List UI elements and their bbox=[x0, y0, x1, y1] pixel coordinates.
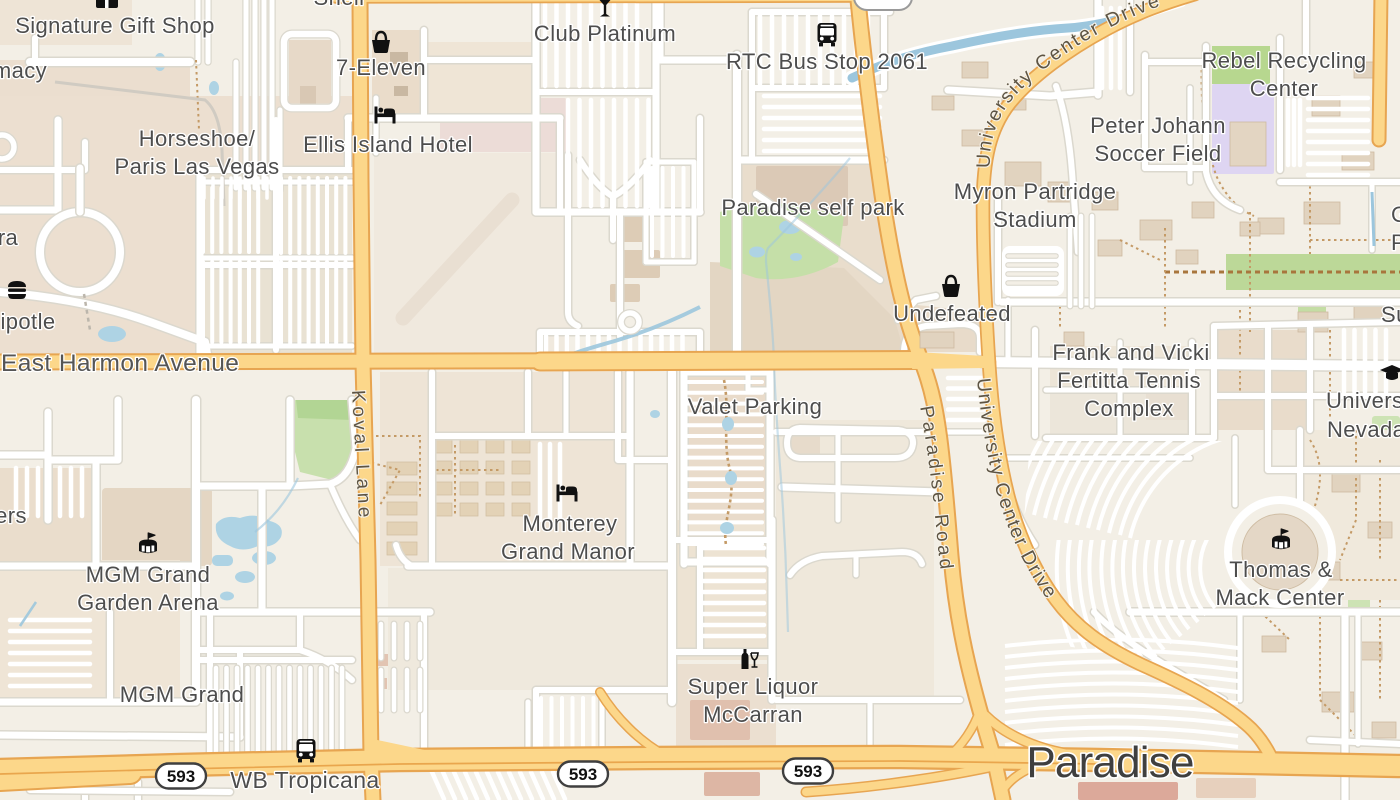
svg-text:593: 593 bbox=[794, 762, 822, 781]
svg-text:Center: Center bbox=[1250, 76, 1318, 101]
svg-text:macy: macy bbox=[0, 58, 47, 83]
svg-text:Su: Su bbox=[1381, 302, 1400, 327]
svg-text:Stadium: Stadium bbox=[993, 207, 1077, 232]
svg-text:Undefeated: Undefeated bbox=[893, 301, 1011, 326]
svg-text:Club Platinum: Club Platinum bbox=[534, 21, 676, 46]
svg-text:Nevada, L: Nevada, L bbox=[1327, 417, 1400, 442]
svg-text:Mack Center: Mack Center bbox=[1215, 585, 1344, 610]
svg-text:Soccer Field: Soccer Field bbox=[1094, 141, 1221, 166]
svg-text:Paradise self park: Paradise self park bbox=[721, 195, 905, 220]
svg-text:Peter Johann: Peter Johann bbox=[1090, 113, 1226, 138]
svg-text:Frank and Vicki: Frank and Vicki bbox=[1052, 340, 1209, 365]
svg-text:WB Tropicana: WB Tropicana bbox=[230, 767, 379, 793]
svg-text:Signature Gift Shop: Signature Gift Shop bbox=[15, 13, 215, 38]
svg-text:Ellis Island Hotel: Ellis Island Hotel bbox=[303, 132, 473, 157]
svg-text:Monterey: Monterey bbox=[523, 511, 618, 536]
svg-text:Paris Las Vegas: Paris Las Vegas bbox=[115, 154, 280, 179]
svg-text:ers: ers bbox=[0, 503, 27, 528]
svg-text:Myron Partridge: Myron Partridge bbox=[954, 179, 1117, 204]
svg-text:593: 593 bbox=[167, 767, 195, 786]
svg-text:ra: ra bbox=[0, 225, 19, 250]
svg-text:RTC Bus Stop 2061: RTC Bus Stop 2061 bbox=[726, 49, 928, 74]
svg-text:Shell: Shell bbox=[314, 0, 365, 10]
svg-text:Fertitta Tennis: Fertitta Tennis bbox=[1057, 368, 1201, 393]
svg-text:McCarran: McCarran bbox=[703, 702, 803, 727]
svg-text:Valet Parking: Valet Parking bbox=[688, 394, 822, 419]
svg-text:Thomas &: Thomas & bbox=[1229, 557, 1332, 582]
svg-text:7-Eleven: 7-Eleven bbox=[336, 55, 426, 80]
svg-text:Rebel Recycling: Rebel Recycling bbox=[1202, 48, 1367, 73]
svg-text:Grand Manor: Grand Manor bbox=[501, 539, 635, 564]
svg-text:Paradise: Paradise bbox=[1026, 738, 1193, 787]
svg-text:Universit: Universit bbox=[1326, 388, 1400, 413]
svg-text:MGM Grand: MGM Grand bbox=[120, 682, 245, 707]
svg-text:Horseshoe/: Horseshoe/ bbox=[139, 126, 256, 151]
svg-text:Garden Arena: Garden Arena bbox=[77, 590, 219, 615]
svg-text:G: G bbox=[1391, 202, 1400, 227]
svg-text:ipotle: ipotle bbox=[1, 309, 56, 334]
svg-text:Complex: Complex bbox=[1084, 396, 1174, 421]
svg-text:East Harmon Avenue: East Harmon Avenue bbox=[1, 350, 239, 377]
svg-text:Super Liquor: Super Liquor bbox=[688, 674, 819, 699]
svg-text:MGM Grand: MGM Grand bbox=[86, 562, 211, 587]
svg-text:593: 593 bbox=[569, 765, 597, 784]
svg-text:P: P bbox=[1391, 230, 1400, 255]
